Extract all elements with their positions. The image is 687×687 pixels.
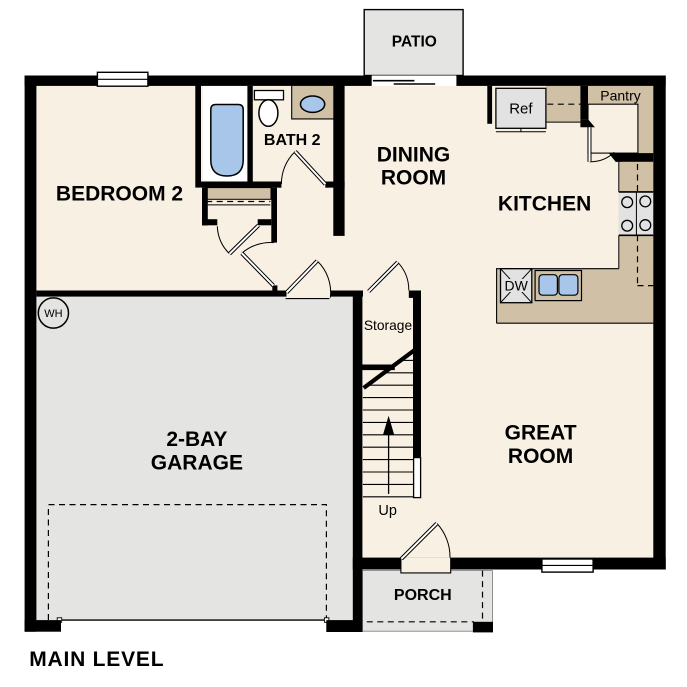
svg-text:PORCH: PORCH <box>394 587 452 604</box>
svg-text:PATIO: PATIO <box>392 33 437 50</box>
svg-text:WH: WH <box>44 308 62 320</box>
svg-text:MAIN LEVEL: MAIN LEVEL <box>29 648 164 671</box>
svg-text:Up: Up <box>378 503 397 519</box>
svg-text:2-BAY: 2-BAY <box>166 428 227 451</box>
svg-text:GREAT: GREAT <box>505 422 577 445</box>
svg-text:DINING: DINING <box>377 144 451 167</box>
svg-text:Ref: Ref <box>509 101 533 118</box>
svg-text:DW: DW <box>505 278 529 294</box>
svg-text:BEDROOM 2: BEDROOM 2 <box>56 183 183 206</box>
svg-text:KITCHEN: KITCHEN <box>498 193 591 216</box>
svg-text:Pantry: Pantry <box>600 88 640 104</box>
svg-text:BATH 2: BATH 2 <box>264 132 321 149</box>
svg-text:ROOM: ROOM <box>508 445 573 468</box>
svg-text:ROOM: ROOM <box>381 167 446 190</box>
svg-text:GARAGE: GARAGE <box>151 452 243 475</box>
svg-text:Storage: Storage <box>364 318 413 333</box>
